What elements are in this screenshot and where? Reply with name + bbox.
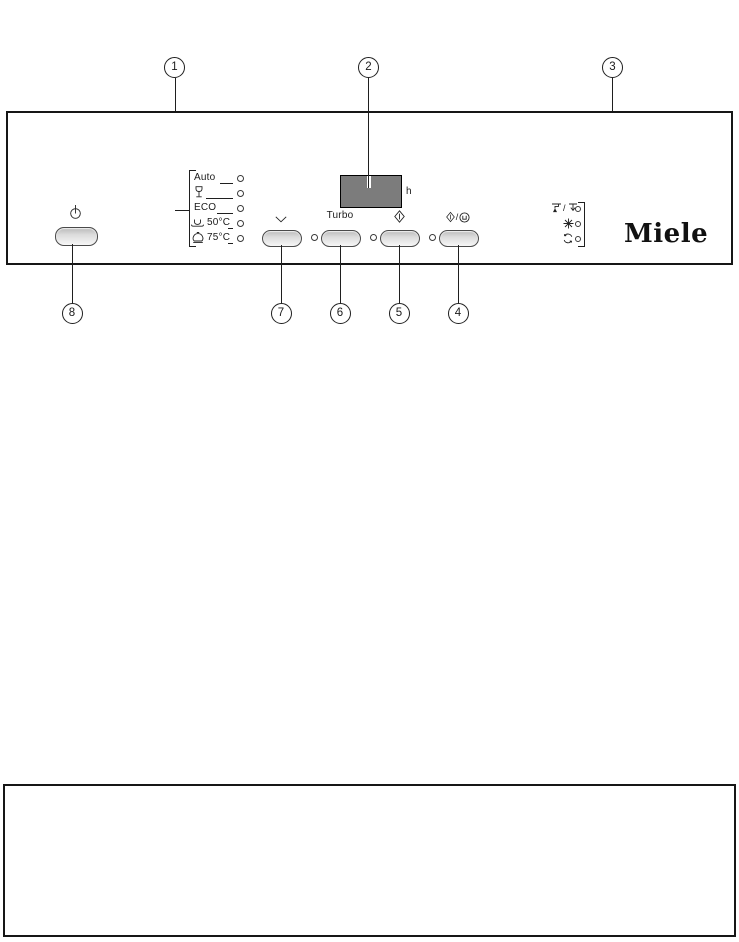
start-drain-icon xyxy=(459,212,470,223)
start-drain-button[interactable] xyxy=(439,230,479,247)
program-select-button[interactable] xyxy=(262,230,302,247)
callout-8-line xyxy=(72,244,73,303)
program-75c-line xyxy=(228,243,233,244)
callout-7: 7 xyxy=(271,303,292,324)
callout-8-number: 8 xyxy=(69,307,75,319)
callout-2-number: 2 xyxy=(365,61,371,73)
callout-7-line xyxy=(281,245,282,303)
program-auto-line xyxy=(220,183,233,184)
wine-glass-icon xyxy=(195,186,203,198)
callout-4-line xyxy=(458,245,459,303)
callout-1: 1 xyxy=(164,57,185,78)
start-drain-label: / xyxy=(439,210,477,224)
program-50c-line xyxy=(228,228,233,229)
indicator-bracket xyxy=(584,202,585,247)
power-button[interactable] xyxy=(55,227,98,246)
program-75c-label: 75°C xyxy=(207,232,230,243)
program-50c-led xyxy=(237,220,244,227)
program-bracket-top-tick xyxy=(189,170,196,171)
start-led xyxy=(370,234,377,241)
chevron-down-icon xyxy=(275,216,287,223)
callout-3: 3 xyxy=(602,57,623,78)
manual-page: 1 2 3 Auto ECO 50°C 75°C h xyxy=(0,0,739,942)
callout-5-number: 5 xyxy=(396,307,402,319)
program-eco-line xyxy=(217,213,233,214)
callout-3-number: 3 xyxy=(609,61,615,73)
cup-saucer-icon xyxy=(191,219,204,228)
indicator-bracket-top-tick xyxy=(578,202,585,203)
salt-icon xyxy=(562,233,574,244)
indicator-separator: / xyxy=(563,203,566,213)
program-auto-label: Auto xyxy=(194,172,215,183)
turbo-button[interactable] xyxy=(321,230,361,247)
start-drain-separator: / xyxy=(456,212,459,222)
program-bracket xyxy=(189,170,190,247)
water-inlet-icon xyxy=(551,203,562,213)
callout-6-number: 6 xyxy=(337,307,343,319)
time-display xyxy=(340,175,402,208)
callout-5: 5 xyxy=(389,303,410,324)
start-icon xyxy=(394,210,405,223)
program-glass-line xyxy=(206,198,233,199)
display-unit-label: h xyxy=(406,186,412,197)
program-eco-led xyxy=(237,205,244,212)
start-drain-led xyxy=(429,234,436,241)
rinse-aid-icon xyxy=(563,218,574,229)
program-glass-led xyxy=(237,190,244,197)
callout-2-line xyxy=(368,78,369,188)
callout-7-number: 7 xyxy=(278,307,284,319)
notes-box xyxy=(3,784,736,937)
brand-logo: Miele xyxy=(624,219,724,249)
salt-led xyxy=(575,236,582,243)
indicator-bracket-bottom-tick xyxy=(578,246,585,247)
callout-8: 8 xyxy=(62,303,83,324)
power-icon xyxy=(69,204,82,220)
program-50c-label: 50°C xyxy=(207,217,230,228)
callout-4-number: 4 xyxy=(455,307,461,319)
program-75c-led xyxy=(237,235,244,242)
turbo-label: Turbo xyxy=(318,210,362,221)
pot-icon xyxy=(192,232,204,244)
callout-5-line xyxy=(399,245,400,303)
callout-1-number: 1 xyxy=(171,61,177,73)
callout-6-line xyxy=(340,245,341,303)
program-bracket-bottom-tick xyxy=(189,246,196,247)
callout-2: 2 xyxy=(358,57,379,78)
rinse-aid-led xyxy=(575,221,582,228)
program-auto-led xyxy=(237,175,244,182)
turbo-led xyxy=(311,234,318,241)
start-icon xyxy=(446,211,455,223)
water-fault-led xyxy=(575,206,582,213)
start-button[interactable] xyxy=(380,230,420,247)
program-eco-label: ECO xyxy=(194,202,216,213)
callout-4: 4 xyxy=(448,303,469,324)
program-bracket-mid-tick xyxy=(175,210,189,211)
callout-6: 6 xyxy=(330,303,351,324)
